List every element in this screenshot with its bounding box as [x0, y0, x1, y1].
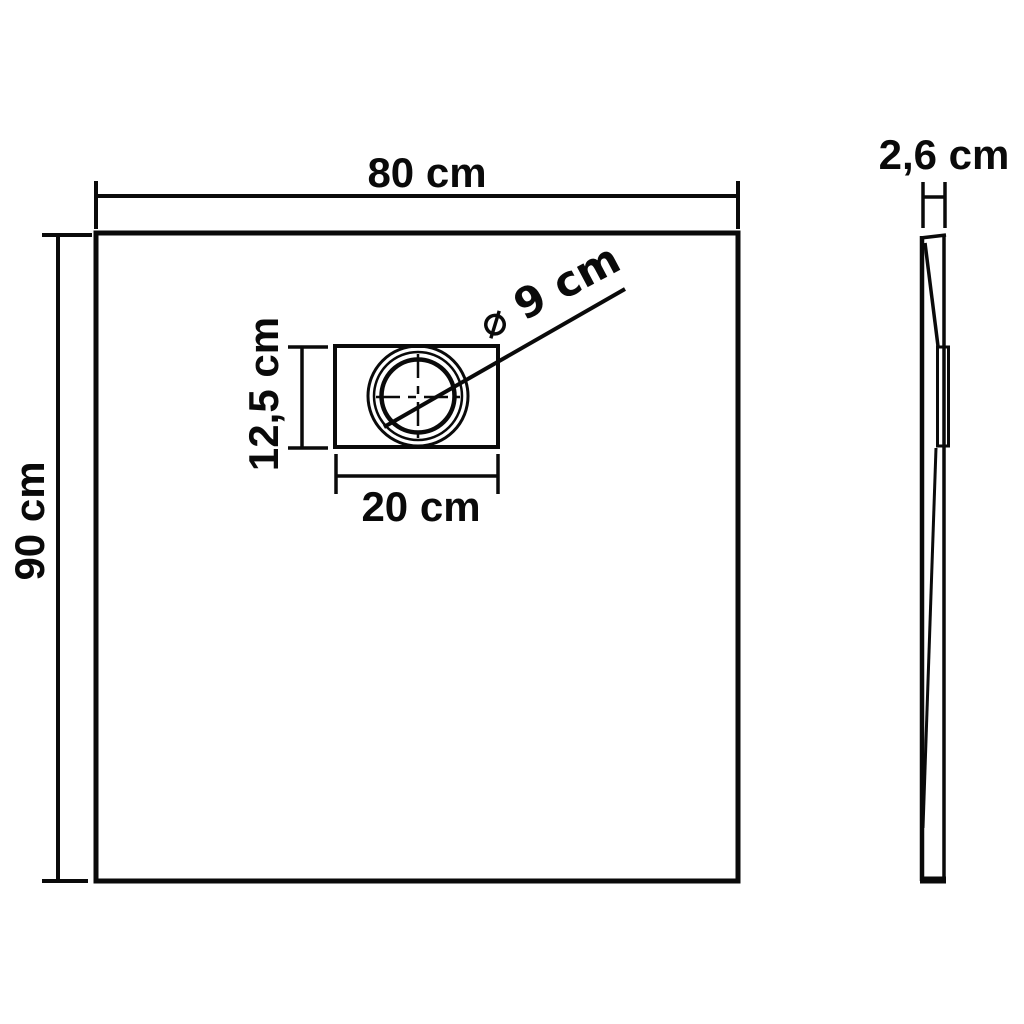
- technical-drawing: 80 cm 90 cm 12,5 cm: [0, 0, 1024, 1024]
- drain-width-dimension-label: 20 cm: [361, 483, 480, 530]
- height-dimension-label: 90 cm: [6, 461, 53, 580]
- width-dimension-label: 80 cm: [367, 149, 486, 196]
- thickness-dimension-label: 2,6 cm: [879, 131, 1010, 178]
- drain-height-dimension-label: 12,5 cm: [240, 317, 287, 471]
- background: [0, 0, 1024, 1024]
- drawing-canvas: 80 cm 90 cm 12,5 cm: [0, 0, 1024, 1024]
